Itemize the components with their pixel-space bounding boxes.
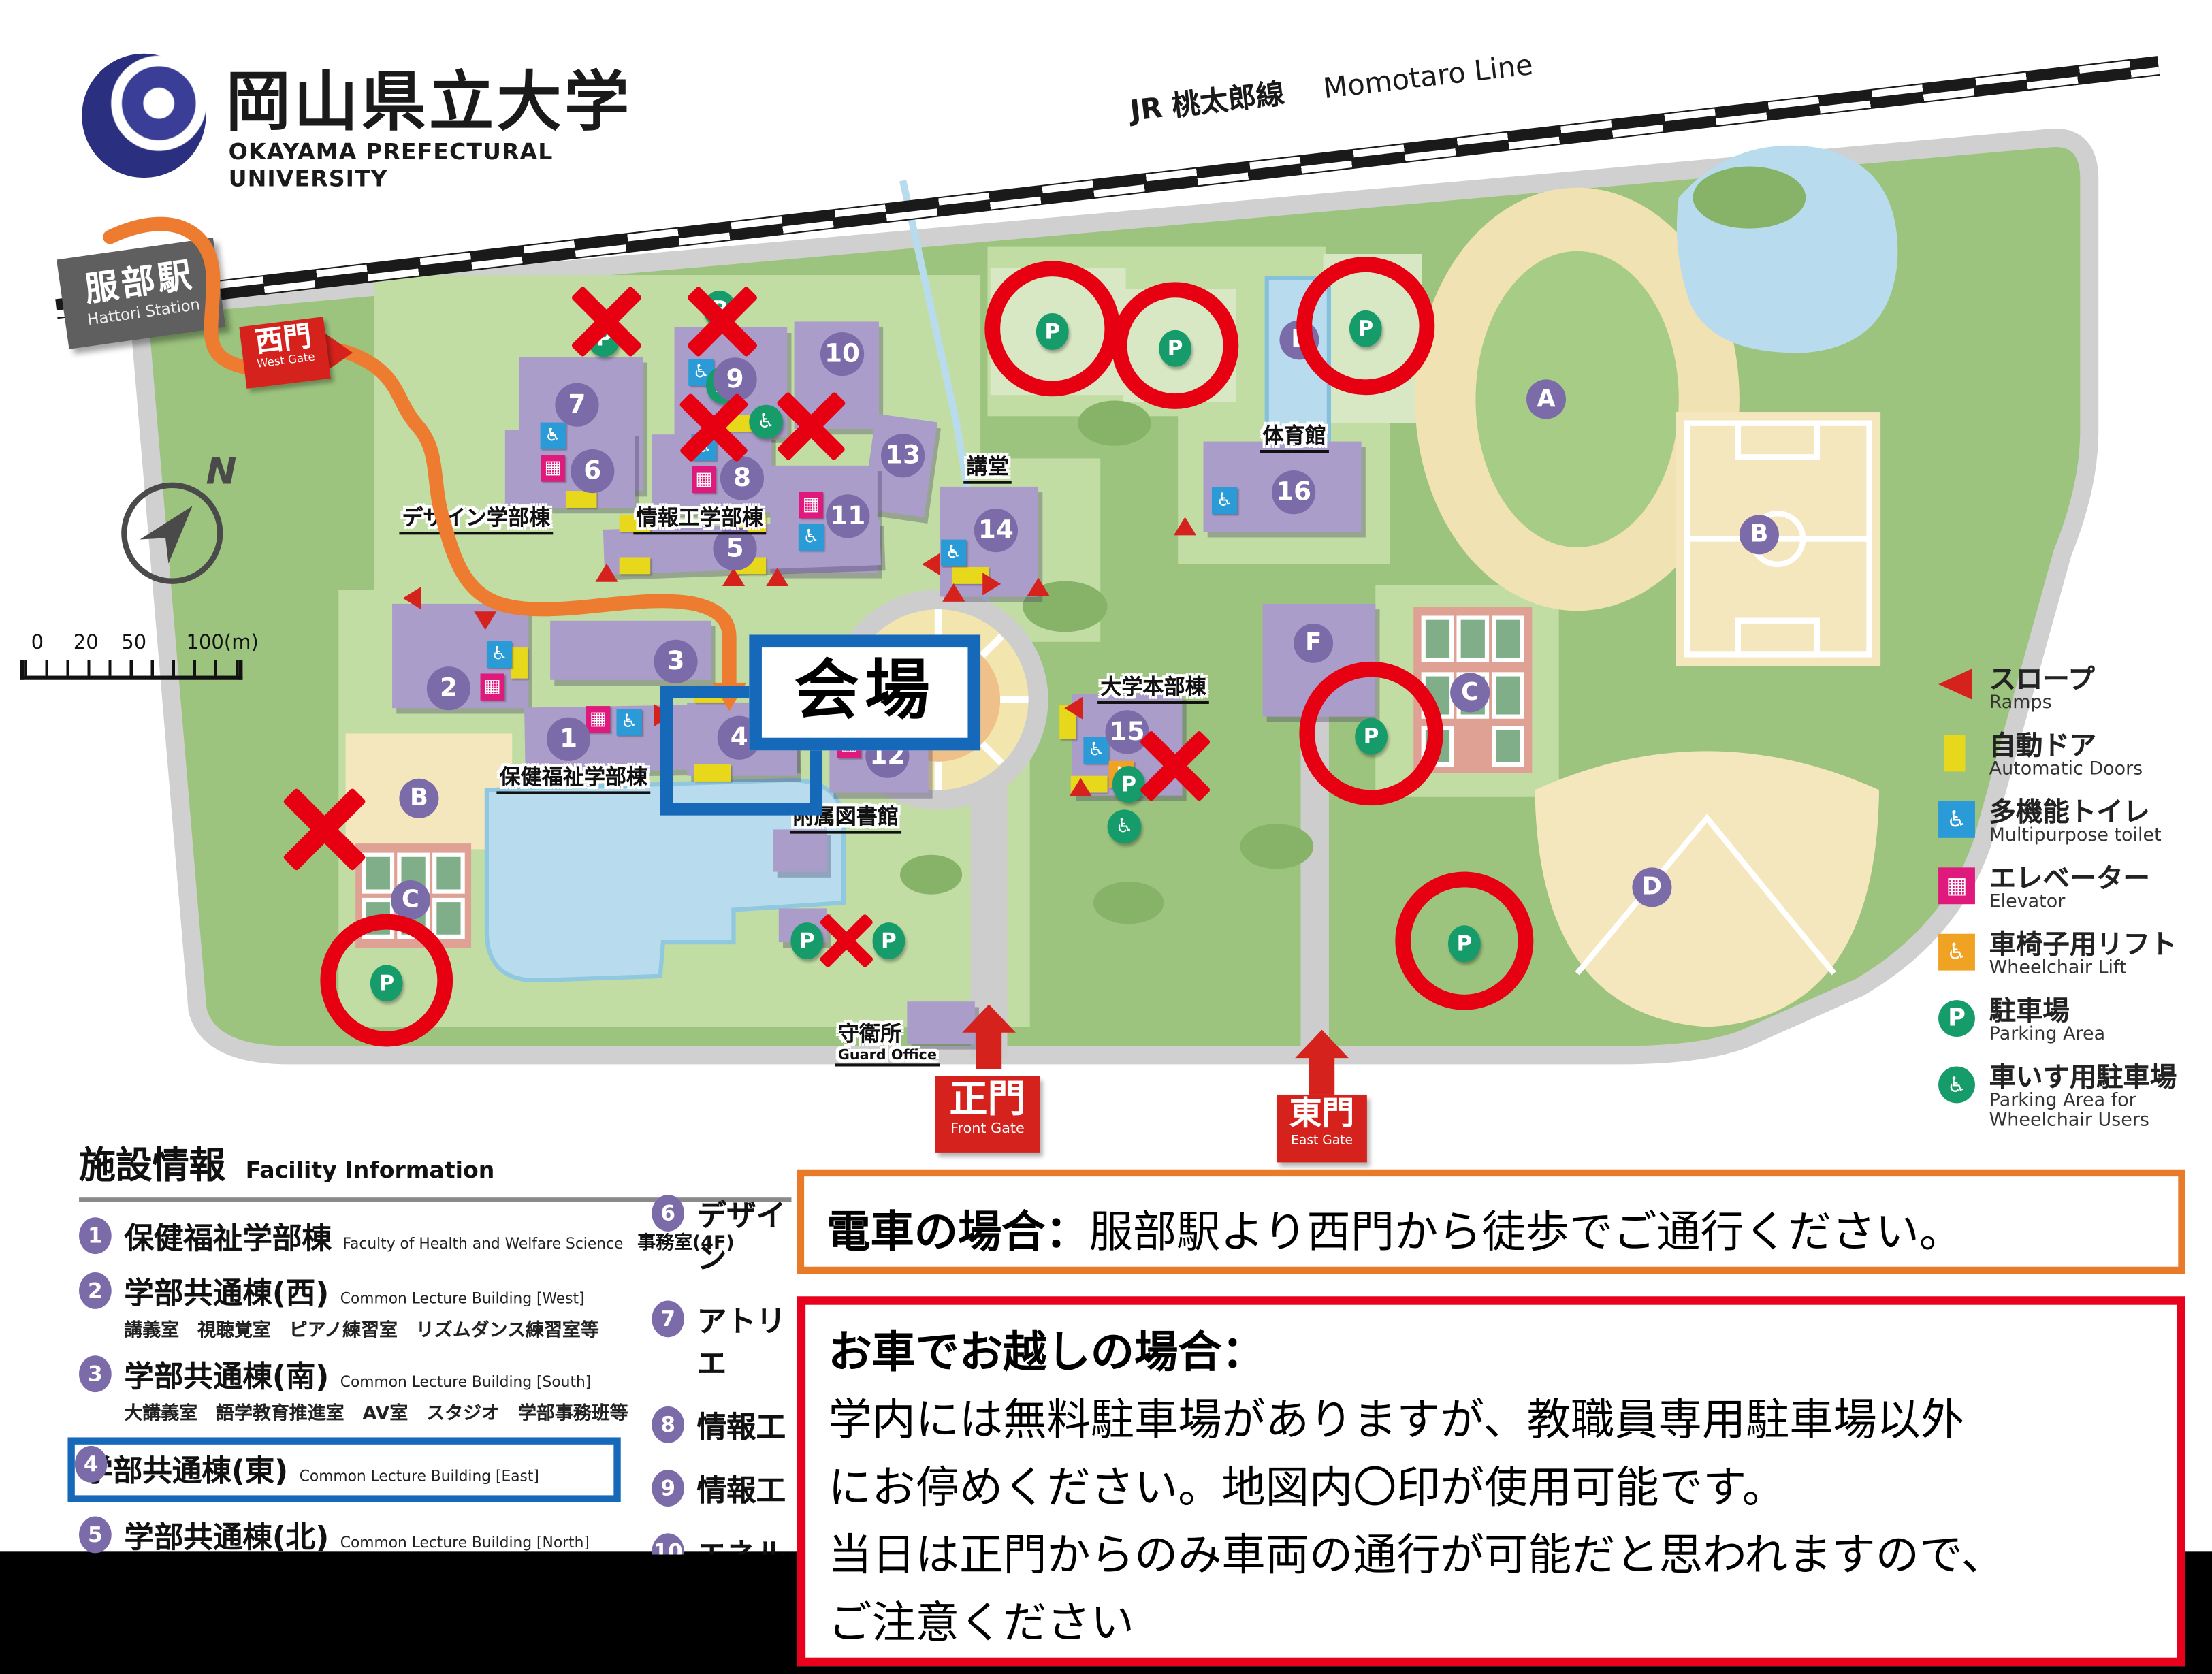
building-badge-13: 13 — [881, 434, 925, 477]
ramp-icon — [982, 573, 1001, 595]
multipurpose-toilet-icon: ♿ — [487, 641, 512, 668]
car-note-line: ご注意ください — [828, 1590, 2177, 1657]
legend-label-jp: 車いす用駐車場 — [1989, 1063, 2207, 1091]
legend-label-en: Ramps — [1989, 694, 2207, 713]
facility-item-10: 10エネル — [652, 1532, 797, 1554]
ramp-icon — [1027, 578, 1049, 596]
legend-label-jp: スロープ — [1989, 666, 2207, 694]
map-label: 保健福祉学部棟 — [496, 762, 650, 794]
ramp-icon — [922, 553, 940, 575]
facility-item-9: 9情報工 — [652, 1468, 797, 1511]
building-badge-3: 3 — [654, 640, 697, 683]
facility-badge-4: 4 — [75, 1446, 108, 1483]
allowed-parking-circle — [1296, 257, 1434, 395]
car-note-line: 学内には無料駐車場がありますが、教職員専用駐車場以外 — [828, 1387, 2177, 1454]
multipurpose-toilet-icon: ♿ — [799, 524, 824, 551]
legend-item-toilet: ♿多機能トイレMultipurpose toilet — [1938, 799, 2207, 846]
lift-icon: ♿ — [1938, 934, 1975, 971]
building-badge-1: 1 — [547, 718, 590, 761]
west-gate-sign: 西門West Gate — [239, 317, 331, 389]
area-badge-B: B — [1740, 515, 1779, 554]
legend-label-en: Parking Area for Wheelchair Users — [1989, 1092, 2207, 1131]
multipurpose-toilet-icon: ♿ — [541, 423, 566, 449]
legend-item-lift: ♿車椅子用リフトWheelchair Lift — [1938, 931, 2207, 979]
facility-badge-6: 6 — [652, 1195, 684, 1232]
car-note-line: お車でお越しの場合： — [828, 1319, 2177, 1386]
elevator-icon: ▦ — [586, 706, 610, 733]
no-parking-x-mark — [564, 279, 649, 364]
building-badge-14: 14 — [974, 509, 1018, 552]
building-badge-7: 7 — [555, 383, 598, 427]
legend-item-parking: P駐車場Parking Area — [1938, 997, 2207, 1045]
car-access-note: お車でお越しの場合：学内には無料駐車場がありますが、教職員専用駐車場以外にお停め… — [797, 1296, 2185, 1666]
multipurpose-toilet-icon: ♿ — [1083, 737, 1108, 764]
legend-label-en: Multipurpose toilet — [1989, 826, 2207, 846]
allowed-parking-circle — [1395, 872, 1533, 1010]
ramp-icon — [1938, 669, 1972, 700]
legend-label-jp: 多機能トイレ — [1989, 799, 2207, 826]
ramp-icon — [1070, 778, 1092, 796]
no-parking-x-mark — [1133, 724, 1217, 808]
parking-icon: P — [1938, 1000, 1975, 1037]
facility-badge-7: 7 — [652, 1300, 684, 1337]
multipurpose-toilet-icon: ♿ — [1212, 487, 1237, 514]
car-note-line: にお停めください。地図内〇印が使用可能です。 — [828, 1454, 2177, 1522]
ramp-icon — [766, 568, 788, 586]
map-label: 大学本部棟 — [1097, 671, 1209, 704]
building-badge-11: 11 — [826, 494, 869, 538]
automatic-door-icon — [511, 647, 528, 679]
building-badge-16: 16 — [1272, 470, 1315, 514]
ramp-icon — [942, 583, 965, 602]
legend-item-door: 自動ドアAutomatic Doors — [1938, 732, 2207, 779]
no-parking-x-mark — [814, 908, 879, 973]
campus-access-map: JR 桃太郎線Momotaro Line 服部駅Hattori Station … — [0, 0, 2212, 1674]
facility-item-8: 8情報工 — [652, 1405, 797, 1447]
legend-label-en: Wheelchair Lift — [1989, 959, 2207, 979]
allowed-parking-circle — [984, 261, 1120, 396]
legend-label-en: Automatic Doors — [1989, 760, 2207, 780]
ramp-icon — [1064, 697, 1083, 720]
train-access-note: 電車の場合：服部駅より西門から徒歩でご通行ください。 — [797, 1170, 2185, 1274]
wc-parking-icon: ♿ — [1938, 1067, 1975, 1104]
east-gate-arrow-icon — [1309, 1055, 1334, 1095]
legend-item-ramp: スロープRamps — [1938, 666, 2207, 713]
facility-badge-10: 10 — [652, 1533, 684, 1554]
no-parking-x-mark — [673, 387, 754, 468]
ramp-icon — [403, 587, 421, 609]
door-icon — [1944, 735, 1965, 772]
legend-label-jp: エレベーター — [1989, 865, 2207, 892]
legend-item-wc-parking: ♿車いす用駐車場Parking Area for Wheelchair User… — [1938, 1063, 2207, 1131]
ramp-icon — [595, 564, 618, 582]
facility-badge-5: 5 — [79, 1517, 112, 1554]
facility-badge-8: 8 — [652, 1406, 684, 1443]
elevator-icon: ▦ — [799, 492, 823, 518]
elevator-icon: ▦ — [541, 455, 565, 481]
facility-badge-2: 2 — [79, 1272, 112, 1309]
legend-label-en: Elevator — [1989, 893, 2207, 913]
automatic-door-icon — [566, 491, 597, 508]
legend-label-jp: 車椅子用リフト — [1989, 931, 2207, 959]
car-note-line: 当日は正門からのみ車両の通行が可能だと思われますので、 — [828, 1522, 2177, 1590]
allowed-parking-circle — [320, 914, 453, 1047]
building-badge-6: 6 — [571, 449, 614, 493]
area-badge-A: A — [1526, 379, 1566, 419]
map-label: デザイン学部棟 — [399, 502, 553, 535]
automatic-door-icon — [620, 557, 651, 574]
area-badge-F: F — [1294, 624, 1333, 663]
elevator-icon: ▦ — [1938, 867, 1975, 904]
venue-label: 会場 — [749, 634, 980, 750]
wheelchair-parking-icon: ♿ — [1108, 809, 1142, 843]
legend-item-elevator: ▦エレベーターElevator — [1938, 865, 2207, 912]
multipurpose-toilet-icon: ♿ — [941, 540, 966, 566]
building — [773, 829, 827, 871]
scale-bar: 0 20 50 100(m) — [20, 632, 246, 679]
compass-icon: N — [121, 483, 223, 584]
map-label: 守衛所Guard Office — [835, 1018, 940, 1066]
no-parking-x-mark — [275, 780, 374, 879]
area-badge-B: B — [399, 779, 438, 818]
facility-badge-1: 1 — [79, 1217, 112, 1254]
map-label: 講堂 — [963, 451, 1011, 484]
no-parking-x-mark — [680, 279, 765, 364]
no-parking-x-mark — [770, 385, 852, 467]
legend-label-jp: 駐車場 — [1989, 997, 2207, 1025]
map-legend: スロープRamps自動ドアAutomatic Doors♿多機能トイレMulti… — [1938, 666, 2207, 1150]
front-gate-arrow-icon — [976, 1030, 1001, 1069]
map-label: 体育館 — [1260, 420, 1329, 453]
facility-item-6: 6デザイン — [652, 1193, 797, 1278]
multipurpose-toilet-icon: ♿ — [617, 709, 642, 735]
area-badge-C: C — [1450, 673, 1490, 712]
facility-badge-3: 3 — [79, 1355, 112, 1392]
building-badge-2: 2 — [427, 666, 470, 710]
east-gate-sign: 東門East Gate — [1277, 1095, 1367, 1162]
area-badge-D: D — [1632, 867, 1671, 907]
ramp-icon — [474, 611, 496, 630]
facility-item-4: 4学部共通棟(東)Common Lecture Building [East] — [67, 1437, 620, 1502]
facility-info-title: 施設情報Facility Information — [79, 1137, 801, 1189]
elevator-icon: ▦ — [692, 466, 716, 493]
legend-label-en: Parking Area — [1989, 1025, 2207, 1045]
building-badge-10: 10 — [820, 332, 864, 376]
legend-label-jp: 自動ドア — [1989, 732, 2207, 760]
facility-information-right-column: 6デザイン7アトリエ8情報工9情報工10エネル11学生会toitowa喫茶 コン — [652, 1193, 797, 1554]
facility-badge-9: 9 — [652, 1470, 684, 1507]
area-badge-C: C — [391, 880, 430, 920]
allowed-parking-circle — [1112, 282, 1238, 408]
elevator-icon: ▦ — [481, 673, 504, 700]
toilet-icon: ♿ — [1938, 801, 1975, 838]
map-label: 情報工学部棟 — [633, 502, 766, 535]
front-gate-sign: 正門Front Gate — [935, 1076, 1040, 1153]
facility-item-7: 7アトリエ — [652, 1299, 797, 1383]
allowed-parking-circle — [1299, 662, 1443, 805]
ramp-icon — [1174, 517, 1196, 535]
